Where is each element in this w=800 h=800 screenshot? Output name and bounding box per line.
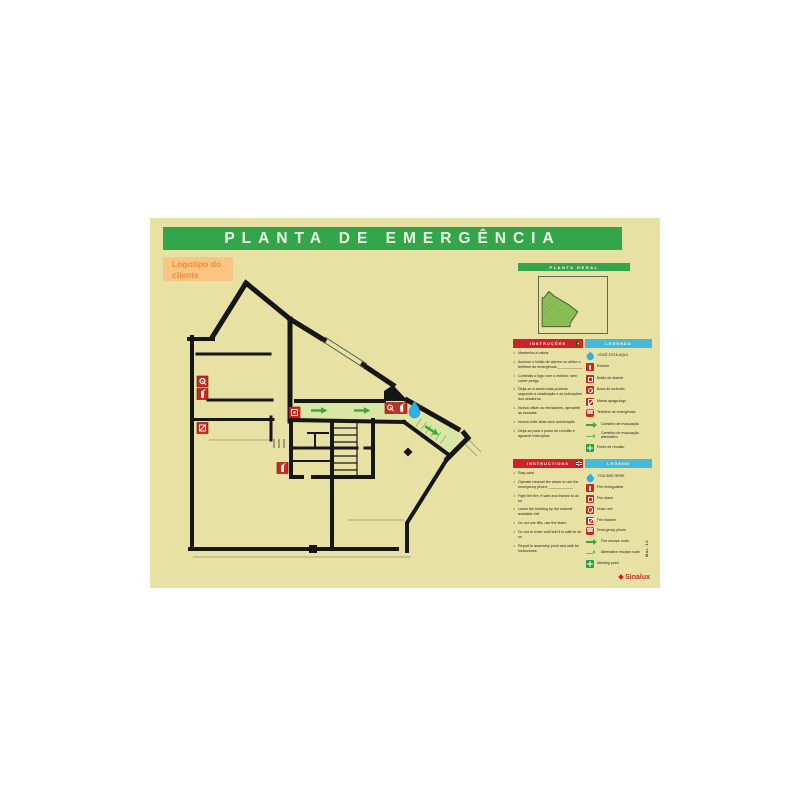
- floor-plan: [150, 268, 495, 568]
- hose-reel-icon: [586, 386, 594, 394]
- legend-item: Ponto de reunião: [586, 442, 652, 454]
- fire-extinguisher-icon: [586, 484, 594, 492]
- wall-pier: [309, 545, 317, 553]
- fire-extinguisher-icon: [397, 403, 408, 414]
- fire-alarm-button-icon: [586, 495, 594, 503]
- emergency-phone-icon: [586, 409, 594, 417]
- construction-lines: [193, 440, 481, 557]
- general-plan-header: PLANTA GERAL: [518, 263, 630, 271]
- instructions-en-list: Stay calm Operate nearest fire alarm or …: [513, 471, 583, 557]
- column-marker: [404, 448, 413, 457]
- meeting-point-icon: [586, 560, 594, 568]
- alternative-escape-route-arrow-icon: [586, 549, 598, 557]
- hose-reel-icon: [197, 376, 208, 387]
- legend-item: Hose reel: [586, 504, 652, 515]
- emergency-phone-icon: [586, 527, 594, 535]
- plan-safety-icons: [197, 376, 407, 474]
- legend-item: Boca de incêndio: [586, 385, 652, 397]
- legend-item: Manta apaga-fogo: [586, 396, 652, 408]
- instruction-item: Do not re-enter until told it is safe to…: [513, 530, 583, 540]
- fire-alarm-button-icon: [586, 375, 594, 383]
- legend-en-header: LEGEND: [585, 459, 652, 468]
- fire-blanket-icon: [586, 398, 594, 406]
- legend-item: Fire alarm: [586, 494, 652, 505]
- instruction-item: Fight the fire, if safe and trained to d…: [513, 494, 583, 504]
- legend-item: YOU ARE HERE: [586, 472, 652, 483]
- instruction-item: Report to assembly point and wait for in…: [513, 544, 583, 554]
- instructions-pt-label: INSTRUÇÕES: [530, 341, 566, 346]
- legend-item: Fire extinguisher: [586, 483, 652, 494]
- instruction-item: Operate nearest fire alarm or use the em…: [513, 480, 583, 490]
- legend-item: Meeting point: [586, 558, 652, 569]
- legend-item: Botão de alarme: [586, 373, 652, 385]
- site-footprint: [539, 277, 607, 333]
- instruction-item: Accione o botão de alarme ou utilize o t…: [513, 360, 583, 370]
- legend-item: Telefone de emergência: [586, 408, 652, 420]
- brand-mark-icon: [618, 574, 624, 580]
- brand-name: Sinalux: [625, 574, 650, 581]
- brand-logo: Sinalux: [560, 574, 650, 581]
- legend-pt-list: VOCÊ ESTÁ AQUI Extintor Botão de alarme …: [586, 350, 652, 454]
- legend-item: Fire escape route: [586, 537, 652, 548]
- instructions-en-header: INSTRUCTIONS: [513, 459, 583, 468]
- fire-extinguisher-icon: [197, 389, 208, 400]
- instruction-item: Leave the building by the nearest availa…: [513, 507, 583, 517]
- instruction-item: Nunca utilize os elevadores, aproveite a…: [513, 406, 583, 416]
- edition-label: Mar. 12: [644, 540, 649, 557]
- instruction-item: Combata o fogo com o extintor, sem corre…: [513, 374, 583, 384]
- alternative-escape-route-arrow-icon: [586, 432, 598, 440]
- instruction-item: Do not use lifts, use the stairs: [513, 521, 583, 526]
- legend-item: Caminho de evacuação alternativo: [586, 431, 652, 443]
- legend-item: Fire blanket: [586, 515, 652, 526]
- legend-item: Emergency phone: [586, 526, 652, 537]
- page: PLANTA DE EMERGÊNCIA Logotipo do cliente: [0, 0, 800, 800]
- instructions-pt-list: Mantenha a calma Accione o botão de alar…: [513, 351, 583, 442]
- fire-extinguisher-icon: [277, 463, 288, 474]
- instruction-item: Dirija-se para o ponto de reunião e agua…: [513, 429, 583, 439]
- instruction-item: Mantenha a calma: [513, 351, 583, 356]
- legend-item: Caminho de evacuação: [586, 419, 652, 431]
- instruction-item: Dirija-se à saída mais próxima seguindo …: [513, 387, 583, 402]
- you-are-here-drop-icon: [586, 352, 595, 361]
- legend-en-list: YOU ARE HERE Fire extinguisher Fire alar…: [586, 472, 652, 569]
- legend-item: VOCÊ ESTÁ AQUI: [586, 350, 652, 362]
- fire-blanket-icon: [197, 423, 208, 434]
- legend-pt-header: LEGENDA: [585, 339, 652, 348]
- instructions-en-label: INSTRUCTIONS: [527, 461, 569, 466]
- legend-en-label: LEGEND: [607, 461, 630, 466]
- page-title: PLANTA DE EMERGÊNCIA: [163, 227, 622, 250]
- escape-route-arrow-icon: [586, 538, 598, 546]
- legend-item: Extintor: [586, 362, 652, 374]
- portugal-flag-icon: [576, 341, 582, 346]
- instruction-item: Nunca volte atrás sem autorização: [513, 420, 583, 425]
- emergency-plan-poster: PLANTA DE EMERGÊNCIA Logotipo do cliente: [150, 218, 660, 588]
- legend-pt-label: LEGENDA: [605, 341, 632, 346]
- instructions-pt-header: INSTRUÇÕES: [513, 339, 583, 348]
- uk-flag-icon: [576, 461, 582, 466]
- general-plan-map: [538, 276, 608, 334]
- escape-route-arrow-icon: [586, 421, 598, 429]
- meeting-point-icon: [586, 444, 594, 452]
- fire-extinguisher-icon: [586, 363, 594, 371]
- fire-alarm-button-icon: [289, 407, 300, 418]
- legend-item: Alternative escape route: [586, 548, 652, 559]
- hose-reel-icon: [586, 506, 594, 514]
- fire-blanket-icon: [586, 517, 594, 525]
- hose-reel-icon: [385, 403, 396, 414]
- instruction-item: Stay calm: [513, 471, 583, 476]
- you-are-here-drop-icon: [586, 473, 595, 482]
- wall-chunk: [384, 385, 408, 401]
